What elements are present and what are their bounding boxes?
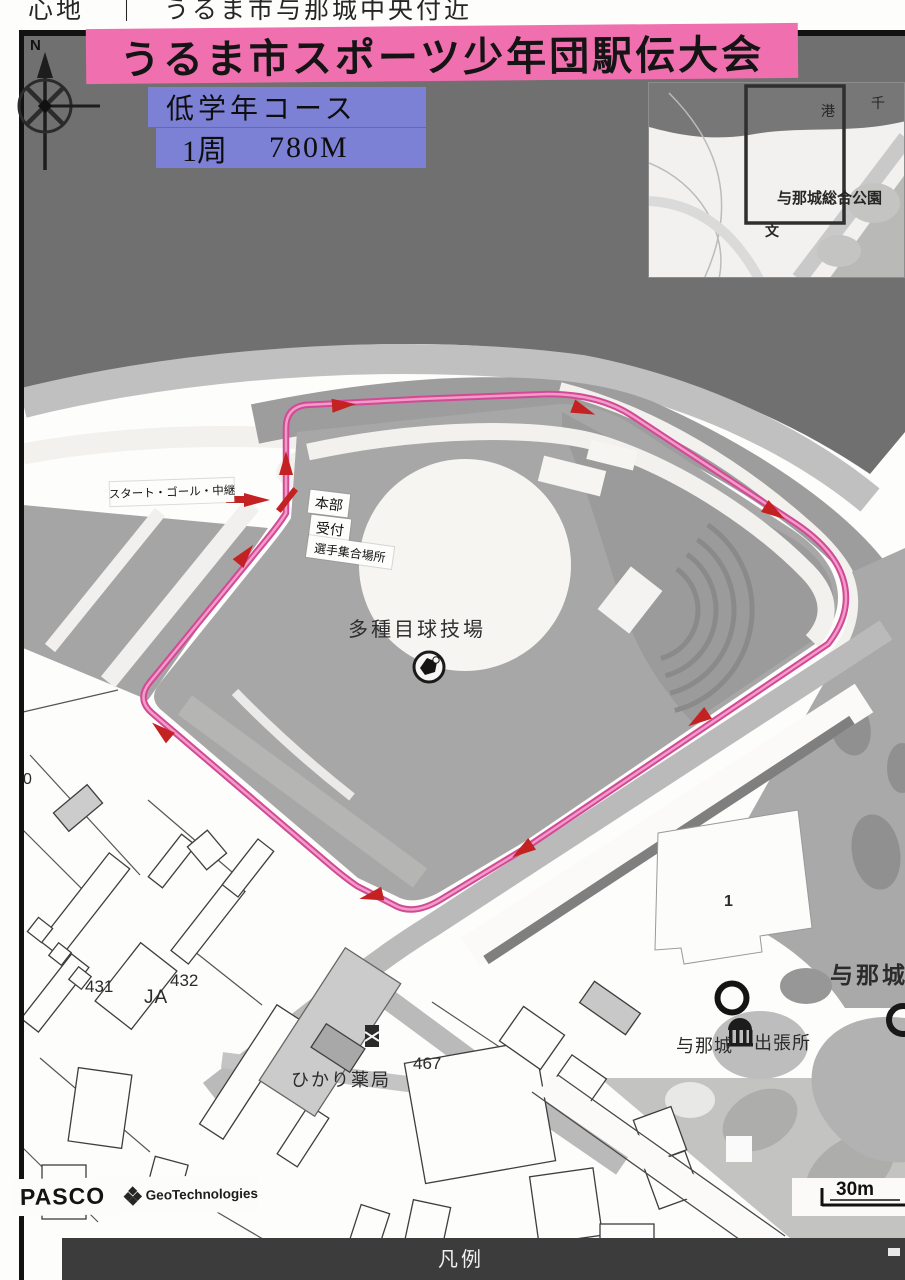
legend-title: 凡例 (438, 1243, 484, 1272)
scale-line (792, 1178, 905, 1216)
ball-field-icon (414, 652, 444, 682)
event-title: うるま市スポーツ少年団駅伝大会 (120, 22, 765, 86)
compass-icon (12, 36, 104, 186)
course-distance-box: 1周 780M (156, 128, 426, 168)
legend-bar-mark (888, 1248, 900, 1256)
block-number-467: 467 (413, 1054, 441, 1074)
park-grove (780, 968, 832, 1004)
course-name-box: 低学年コース (148, 87, 426, 127)
park-plaza (726, 1136, 752, 1162)
branch-office-label-prefix: 与那城 (676, 1032, 733, 1058)
course-distance: 780M (269, 131, 349, 165)
geotechnologies-icon (123, 1185, 142, 1205)
block-number-432: 432 (170, 971, 198, 991)
course-name: 低学年コース (166, 87, 357, 127)
course-lap: 1周 (182, 126, 227, 170)
inset-school-symbol: 文 (765, 221, 779, 241)
stadium-label: 多種目球技場 (348, 613, 486, 642)
inset-label-park: 与那城総合公園 (777, 187, 882, 208)
block-number-431: 431 (85, 977, 113, 997)
page-header: 心地 ｜ うるま市与那城中央付近 (28, 0, 472, 26)
pharmacy-label: ひかり薬局 (291, 1066, 391, 1092)
headquarters-label: 本部 (308, 490, 351, 518)
building-1-label: 1 (724, 893, 733, 911)
start-goal-relay-text: スタート・ゴール・中継 (109, 482, 236, 502)
inset-label-sen: 千 (871, 93, 885, 113)
pharmacy-icon (365, 1025, 379, 1047)
compass-north-label: N (30, 37, 41, 54)
roundabout-icon (718, 984, 747, 1013)
start-goal-relay-label: スタート・ゴール・中継 (110, 478, 235, 506)
compass-rose: N (12, 36, 104, 186)
headquarters-text: 本部 (314, 492, 344, 515)
branch-office-label-suffix: 出張所 (754, 1029, 811, 1055)
geotechnologies-logo: GeoTechnologies (146, 1186, 259, 1203)
header-title: うるま市与那城中央付近 (164, 0, 472, 26)
header-prefix: 心地 (28, 0, 84, 26)
map-border-left (19, 30, 24, 1280)
inset-label-harbor: 港 (821, 101, 835, 121)
inset-canvas (649, 83, 905, 278)
scale-bar: 30m (792, 1178, 905, 1216)
block-number-edge: 0 (23, 771, 32, 789)
header-separator: ｜ (114, 0, 142, 26)
district-label: 与那城 (830, 956, 905, 990)
pasco-logo: PASCO (20, 1183, 106, 1211)
ja-label: JA (144, 987, 168, 1009)
inset-overview-map: 港 千 与那城総合公園 文 (648, 82, 905, 278)
map-credits: PASCO GeoTechnologies (12, 1175, 259, 1216)
map-page: 心地 ｜ うるま市与那城中央付近 うるま市スポーツ少年団駅伝大会 低学年コース … (0, 0, 905, 1280)
title-banner: うるま市スポーツ少年団駅伝大会 (86, 23, 798, 84)
